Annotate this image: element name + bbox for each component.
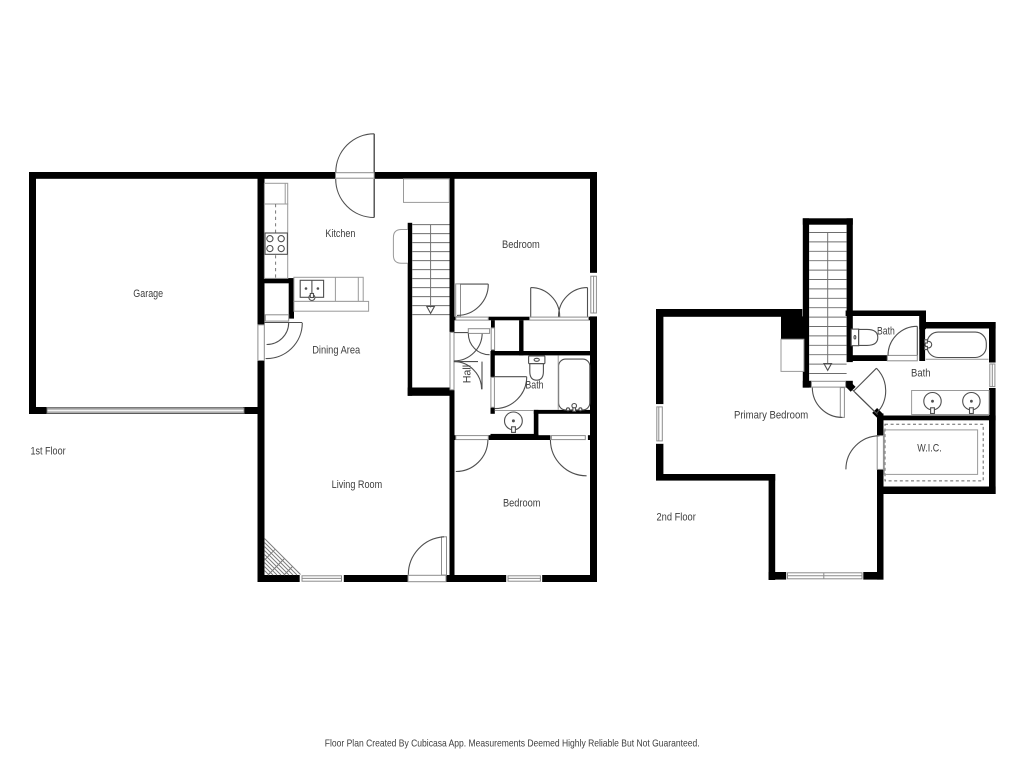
svg-text:Bedroom: Bedroom: [503, 498, 541, 510]
svg-text:W.I.C.: W.I.C.: [917, 442, 941, 454]
svg-text:Dining Area: Dining Area: [312, 345, 361, 357]
svg-text:Floor Plan Created By Cubicasa: Floor Plan Created By Cubicasa App. Meas…: [325, 738, 700, 749]
svg-text:Kitchen: Kitchen: [325, 228, 355, 240]
svg-text:Garage: Garage: [133, 288, 163, 300]
svg-text:Bath: Bath: [525, 380, 543, 392]
svg-text:Bedroom: Bedroom: [502, 239, 540, 251]
svg-text:Bath: Bath: [877, 325, 895, 337]
svg-text:2nd Floor: 2nd Floor: [657, 511, 696, 523]
svg-text:1st Floor: 1st Floor: [31, 445, 66, 457]
svg-text:Hall: Hall: [462, 365, 474, 383]
svg-text:Primary Bedroom: Primary Bedroom: [734, 409, 808, 421]
svg-text:Living Room: Living Room: [332, 479, 383, 491]
svg-text:Bath: Bath: [911, 368, 931, 380]
